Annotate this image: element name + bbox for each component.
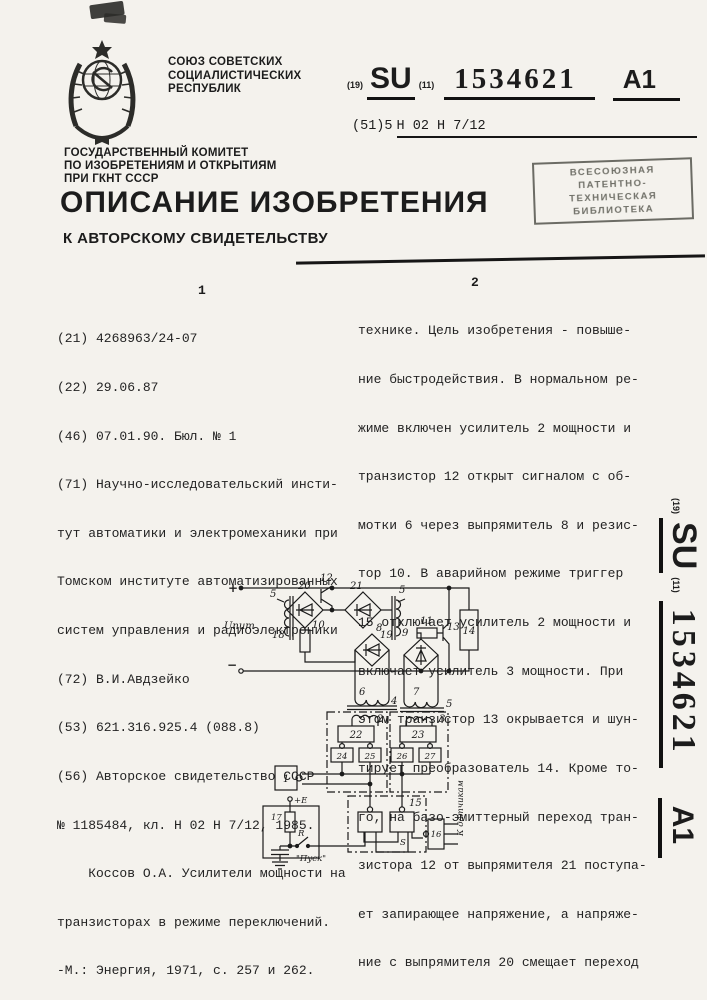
transistor-12-label: 12 (320, 573, 333, 584)
ipc-label: (51)5 (352, 119, 393, 134)
text-line: транзисторах в режиме переключений. (57, 915, 359, 931)
unit-14-label: 14 (463, 626, 476, 637)
union-name: СОЮЗ СОВЕТСКИХ СОЦИАЛИСТИЧЕСКИХ РЕСПУБЛИ… (168, 56, 302, 97)
union-line: СОЦИАЛИСТИЧЕСКИХ (168, 70, 302, 84)
winding-5a-label: 5 (270, 589, 276, 600)
text-line: ние с выпрямителя 20 смещает переход (358, 955, 664, 971)
rectifier-21-label: 21 (349, 581, 363, 592)
text-line: (22) 29.06.87 (57, 380, 359, 396)
text-line: ет запирающее напряжение, а напряже- (358, 907, 664, 923)
text-line: ние быстродействия. В нормальном ре- (358, 372, 664, 388)
doc-country: SU (367, 62, 415, 100)
document-subtitle: К АВТОРСКОМУ СВИДЕТЕЛЬСТВУ (63, 230, 328, 247)
text-line: транзистор 12 открыт сигналом с об- (358, 469, 664, 485)
doc-number: 1534621 (659, 601, 702, 768)
doc-code-prefix: (19) (347, 80, 363, 90)
doc-number: 1534621 (444, 63, 595, 100)
circuit-labels: + Uпит − 5 18 20 12 21 5 19 10 8 9 11 13… (224, 573, 475, 864)
union-line: СОЮЗ СОВЕТСКИХ (168, 56, 302, 70)
rectifier-8-label: 8 (376, 623, 382, 634)
doc-kind: A1 (613, 64, 680, 101)
supply-voltage-label: Uпит (224, 621, 255, 632)
committee-line: ГОСУДАРСТВЕННЫЙ КОМИТЕТ (64, 147, 277, 160)
unit-27-label: 27 (424, 752, 436, 762)
resistor-17-label: 17 (271, 813, 282, 823)
rectifier-20-label: 20 (297, 581, 311, 592)
plus-e-label: +E (294, 796, 308, 806)
text-line: технике. Цель изобретения - повыше- (358, 323, 664, 339)
plus-terminal-label: + (228, 581, 238, 595)
patent-document-page: СОЮЗ СОВЕТСКИХ СОЦИАЛИСТИЧЕСКИХ РЕСПУБЛИ… (0, 0, 707, 1000)
s-input-label: S (400, 838, 406, 848)
circuit-diagram: + Uпит − 5 18 20 12 21 5 19 10 8 9 11 13… (222, 568, 568, 882)
to-sensors-label: К датчикам (456, 780, 466, 837)
resistor-10-label: 10 (312, 620, 325, 631)
doc-kind: A1 (658, 798, 699, 858)
unit-22-label: 22 (349, 730, 363, 741)
text-line: -М.: Энергия, 1971, с. 257 и 262. (57, 963, 359, 979)
library-stamp: ВСЕСОЮЗНАЯ ПАТЕНТНО-ТЕХНИЧЕСКАЯ БИБЛИОТЕ… (532, 157, 694, 225)
doc-num-prefix: (11) (671, 577, 681, 593)
committee: ГОСУДАРСТВЕННЫЙ КОМИТЕТ ПО ИЗОБРЕТЕНИЯМ … (64, 147, 277, 186)
unit-25-label: 25 (364, 752, 376, 762)
text-line: жиме включен усилитель 2 мощности и (358, 421, 664, 437)
publication-number: (19) SU (11) 1534621 A1 (347, 62, 680, 101)
r-input-label: R (297, 829, 305, 839)
committee-line: ПО ИЗОБРЕТЕНИЯМ И ОТКРЫТИЯМ (64, 160, 277, 173)
unit-16-label: 16 (431, 830, 442, 840)
winding-5b-label: 5 (399, 585, 405, 596)
ipc-code: H 02 H 7/12 (397, 119, 697, 138)
left-column-page-number: 1 (198, 283, 206, 298)
minus-terminal-label: − (227, 658, 237, 672)
committee-line: ПРИ ГКНТ СССР (64, 173, 277, 186)
resistor-11-label: 11 (420, 616, 433, 627)
ipc-classification: (51)5H 02 H 7/12 (352, 119, 697, 138)
header-rule (296, 254, 705, 264)
text-line: мотки 6 через выпрямитель 8 и резис- (358, 518, 664, 534)
text-line: (21) 4268963/24-07 (57, 331, 359, 347)
number-4-label: 4 (390, 696, 397, 707)
doc-num-prefix: (11) (419, 80, 435, 90)
ussr-emblem-icon (62, 34, 144, 146)
text-line: (46) 07.01.90. Бюл. № 1 (57, 429, 359, 445)
winding-7-label: 7 (413, 687, 420, 698)
text-line: (71) Научно-исследовательский инсти- (57, 477, 359, 493)
number-5-label: 5 (446, 699, 452, 710)
circuit-lines (239, 586, 478, 869)
doc-code-prefix: (19) (671, 498, 681, 514)
text-line: тут автоматики и электромеханики при (57, 526, 359, 542)
doc-country: SU (659, 518, 703, 573)
unit-24-label: 24 (336, 752, 348, 762)
document-title: ОПИСАНИЕ ИЗОБРЕТЕНИЯ (60, 186, 489, 220)
trigger-15-label: 15 (409, 798, 422, 809)
winding-18-label: 18 (272, 630, 285, 641)
unit-1-label: 1 (283, 774, 289, 785)
unit-23-label: 23 (411, 730, 425, 741)
right-column-page-number: 2 (471, 275, 479, 290)
rectifier-9-label: 9 (402, 628, 409, 639)
pusk-switch-label: "Пуск" (296, 854, 326, 864)
unit-3-label: 3 (439, 714, 445, 725)
unit-2-label: 2 (376, 714, 383, 725)
side-publication-number: (19) SU (11) 1534621 A1 (641, 498, 703, 833)
scan-smudge (104, 13, 127, 24)
unit-26-label: 26 (396, 752, 408, 762)
winding-6-label: 6 (359, 687, 366, 698)
union-line: РЕСПУБЛИК (168, 83, 302, 97)
transistor-13-label: 13 (447, 622, 460, 633)
